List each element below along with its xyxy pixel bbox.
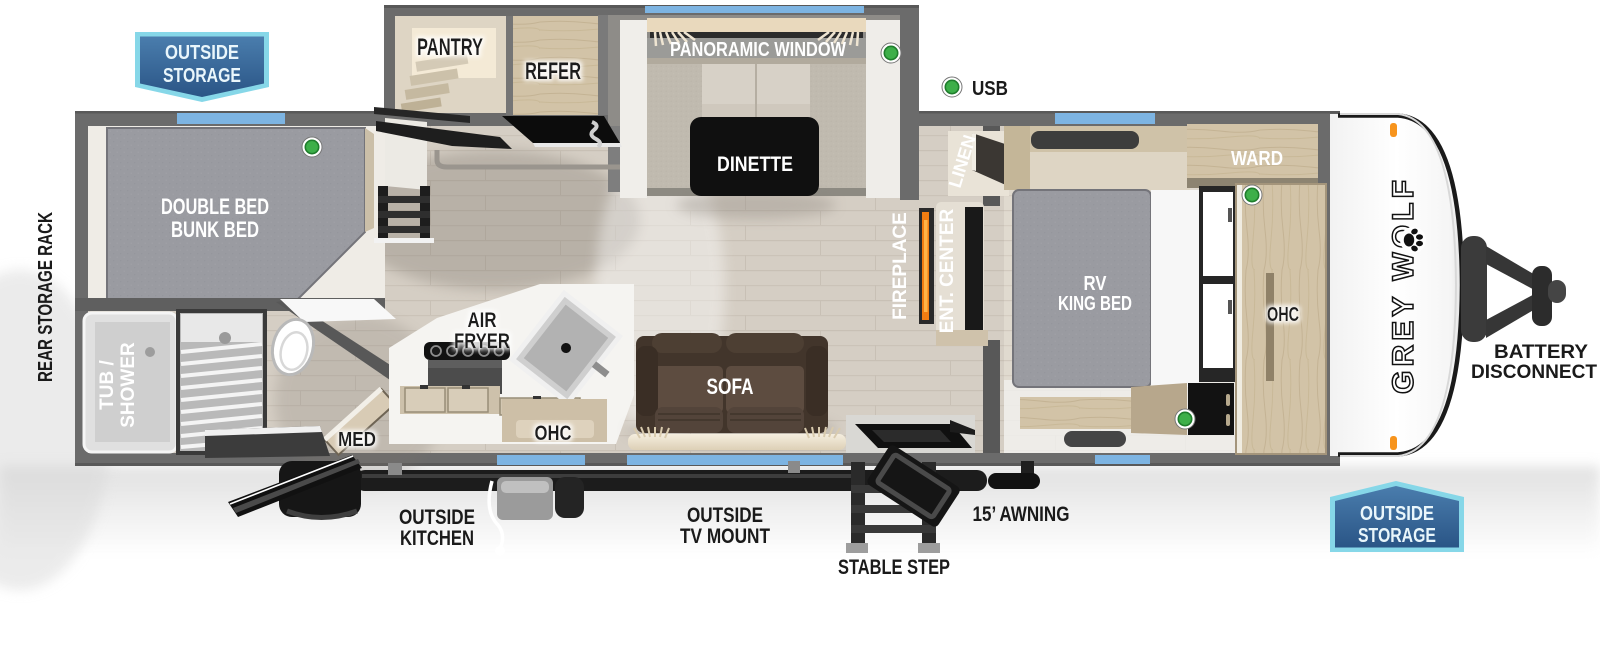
svg-text:BUNK BED: BUNK BED — [171, 217, 259, 242]
svg-text:OUTSIDE: OUTSIDE — [1360, 503, 1434, 525]
svg-text:STORAGE: STORAGE — [1358, 525, 1436, 547]
svg-text:OUTSIDE: OUTSIDE — [687, 504, 763, 527]
svg-text:STORAGE: STORAGE — [163, 65, 241, 87]
svg-text:BATTERY: BATTERY — [1494, 342, 1588, 363]
svg-text:TUB /: TUB / — [97, 359, 118, 409]
svg-text:DOUBLE BED: DOUBLE BED — [161, 194, 269, 219]
svg-text:PANORAMIC WINDOW: PANORAMIC WINDOW — [670, 39, 846, 61]
svg-text:GREY WOLF: GREY WOLF — [1387, 176, 1420, 394]
svg-text:USB: USB — [972, 78, 1008, 100]
svg-text:STABLE STEP: STABLE STEP — [838, 556, 950, 579]
svg-text:SOFA: SOFA — [707, 374, 754, 399]
svg-text:OHC: OHC — [535, 422, 572, 445]
svg-text:FIREPLACE: FIREPLACE — [890, 212, 911, 320]
svg-text:KITCHEN: KITCHEN — [400, 527, 474, 550]
svg-text:RV: RV — [1084, 273, 1108, 295]
svg-text:WARD: WARD — [1231, 148, 1283, 170]
svg-text:OHC: OHC — [1267, 304, 1299, 326]
svg-text:TV MOUNT: TV MOUNT — [680, 525, 770, 548]
svg-text:OUTSIDE: OUTSIDE — [399, 506, 475, 529]
svg-text:KING BED: KING BED — [1058, 293, 1132, 315]
svg-text:AIR: AIR — [468, 309, 497, 332]
svg-text:REFER: REFER — [525, 58, 581, 85]
svg-text:FRYER: FRYER — [454, 330, 510, 353]
svg-text:PANTRY: PANTRY — [417, 34, 483, 61]
svg-text:MED: MED — [338, 429, 376, 451]
svg-text:SHOWER: SHOWER — [118, 342, 139, 428]
svg-text:15’ AWNING: 15’ AWNING — [973, 503, 1070, 526]
svg-text:DISCONNECT: DISCONNECT — [1471, 362, 1597, 383]
svg-text:DINETTE: DINETTE — [717, 153, 793, 176]
svg-text:ENT. CENTER: ENT. CENTER — [937, 208, 958, 333]
svg-text:REAR STORAGE RACK: REAR STORAGE RACK — [35, 212, 57, 382]
svg-text:OUTSIDE: OUTSIDE — [165, 42, 239, 64]
